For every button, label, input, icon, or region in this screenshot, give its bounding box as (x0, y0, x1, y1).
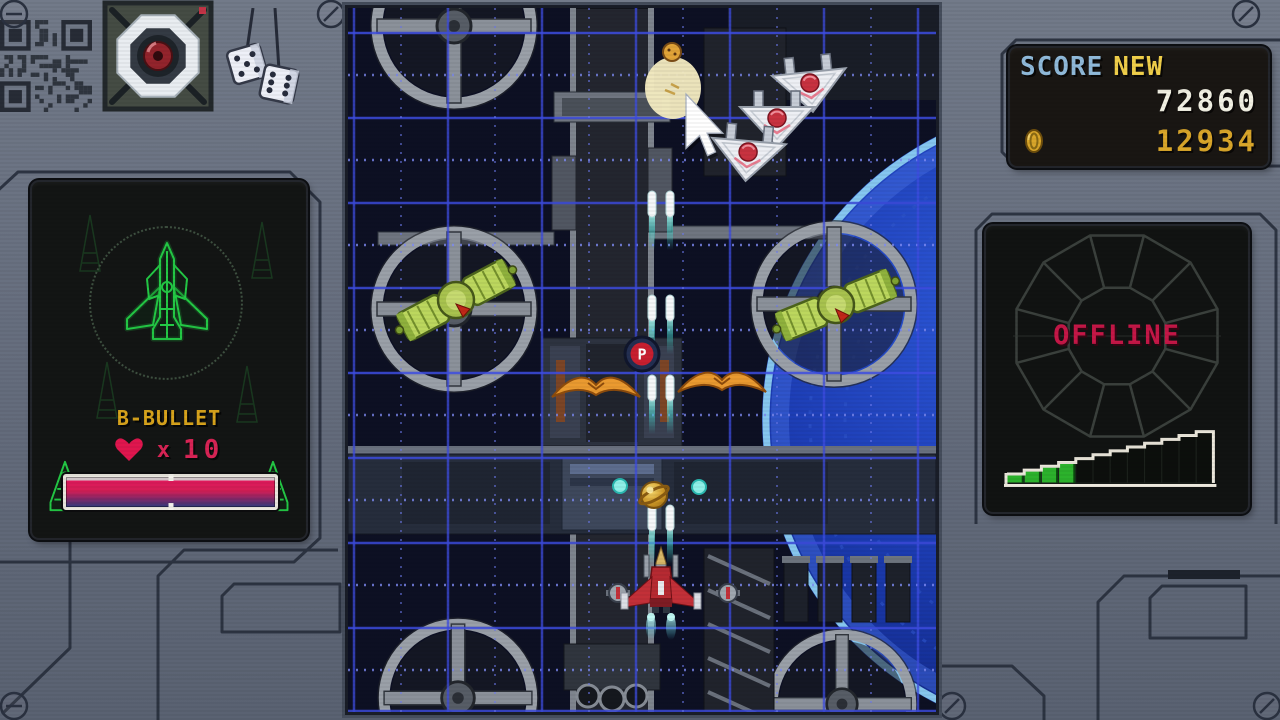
lives-indicator: x 10 (30, 434, 308, 466)
player-bullet (648, 191, 656, 250)
weapon-power-bar (63, 474, 278, 510)
player-bullet (648, 375, 656, 434)
lives-count: 10 (183, 435, 224, 465)
enemy-wing (678, 373, 766, 392)
coin-icon (1024, 128, 1044, 154)
ship-status-panel: B-BULLET x 10 (30, 180, 308, 540)
game-viewport[interactable]: P (348, 8, 936, 712)
radar-panel: OFFLINE (984, 224, 1250, 514)
player-ship-wireframe (122, 240, 212, 352)
weapon-name-label: B-BULLET (30, 406, 308, 430)
score-header: SCORENEW (1020, 52, 1163, 82)
score-panel: SCORENEW 72860 12934 (1008, 46, 1270, 168)
lives-multiplier-symbol: x (157, 438, 170, 463)
energy-orb (613, 479, 627, 493)
spark (663, 43, 681, 61)
charge-meter (1002, 424, 1232, 492)
player-bullet (666, 375, 674, 434)
bezel-notch (1168, 570, 1240, 579)
score-value: 72860 (1156, 84, 1258, 118)
player-bullet (666, 295, 674, 354)
radar-status-label: OFFLINE (984, 320, 1250, 351)
heart-icon (114, 437, 144, 463)
arcade-frame: B-BULLET x 10 SCORENEW (0, 0, 1280, 720)
player-bullet (666, 191, 674, 250)
game-scene: P (348, 8, 936, 712)
coin-value: 12934 (1156, 124, 1258, 158)
score-label: SCORE (1020, 52, 1103, 82)
energy-orb (692, 480, 706, 494)
new-record-badge: NEW (1113, 52, 1163, 82)
svg-text:P: P (637, 346, 646, 364)
coin-counter: 12934 (1024, 126, 1258, 156)
powerup-p: P (625, 337, 659, 371)
